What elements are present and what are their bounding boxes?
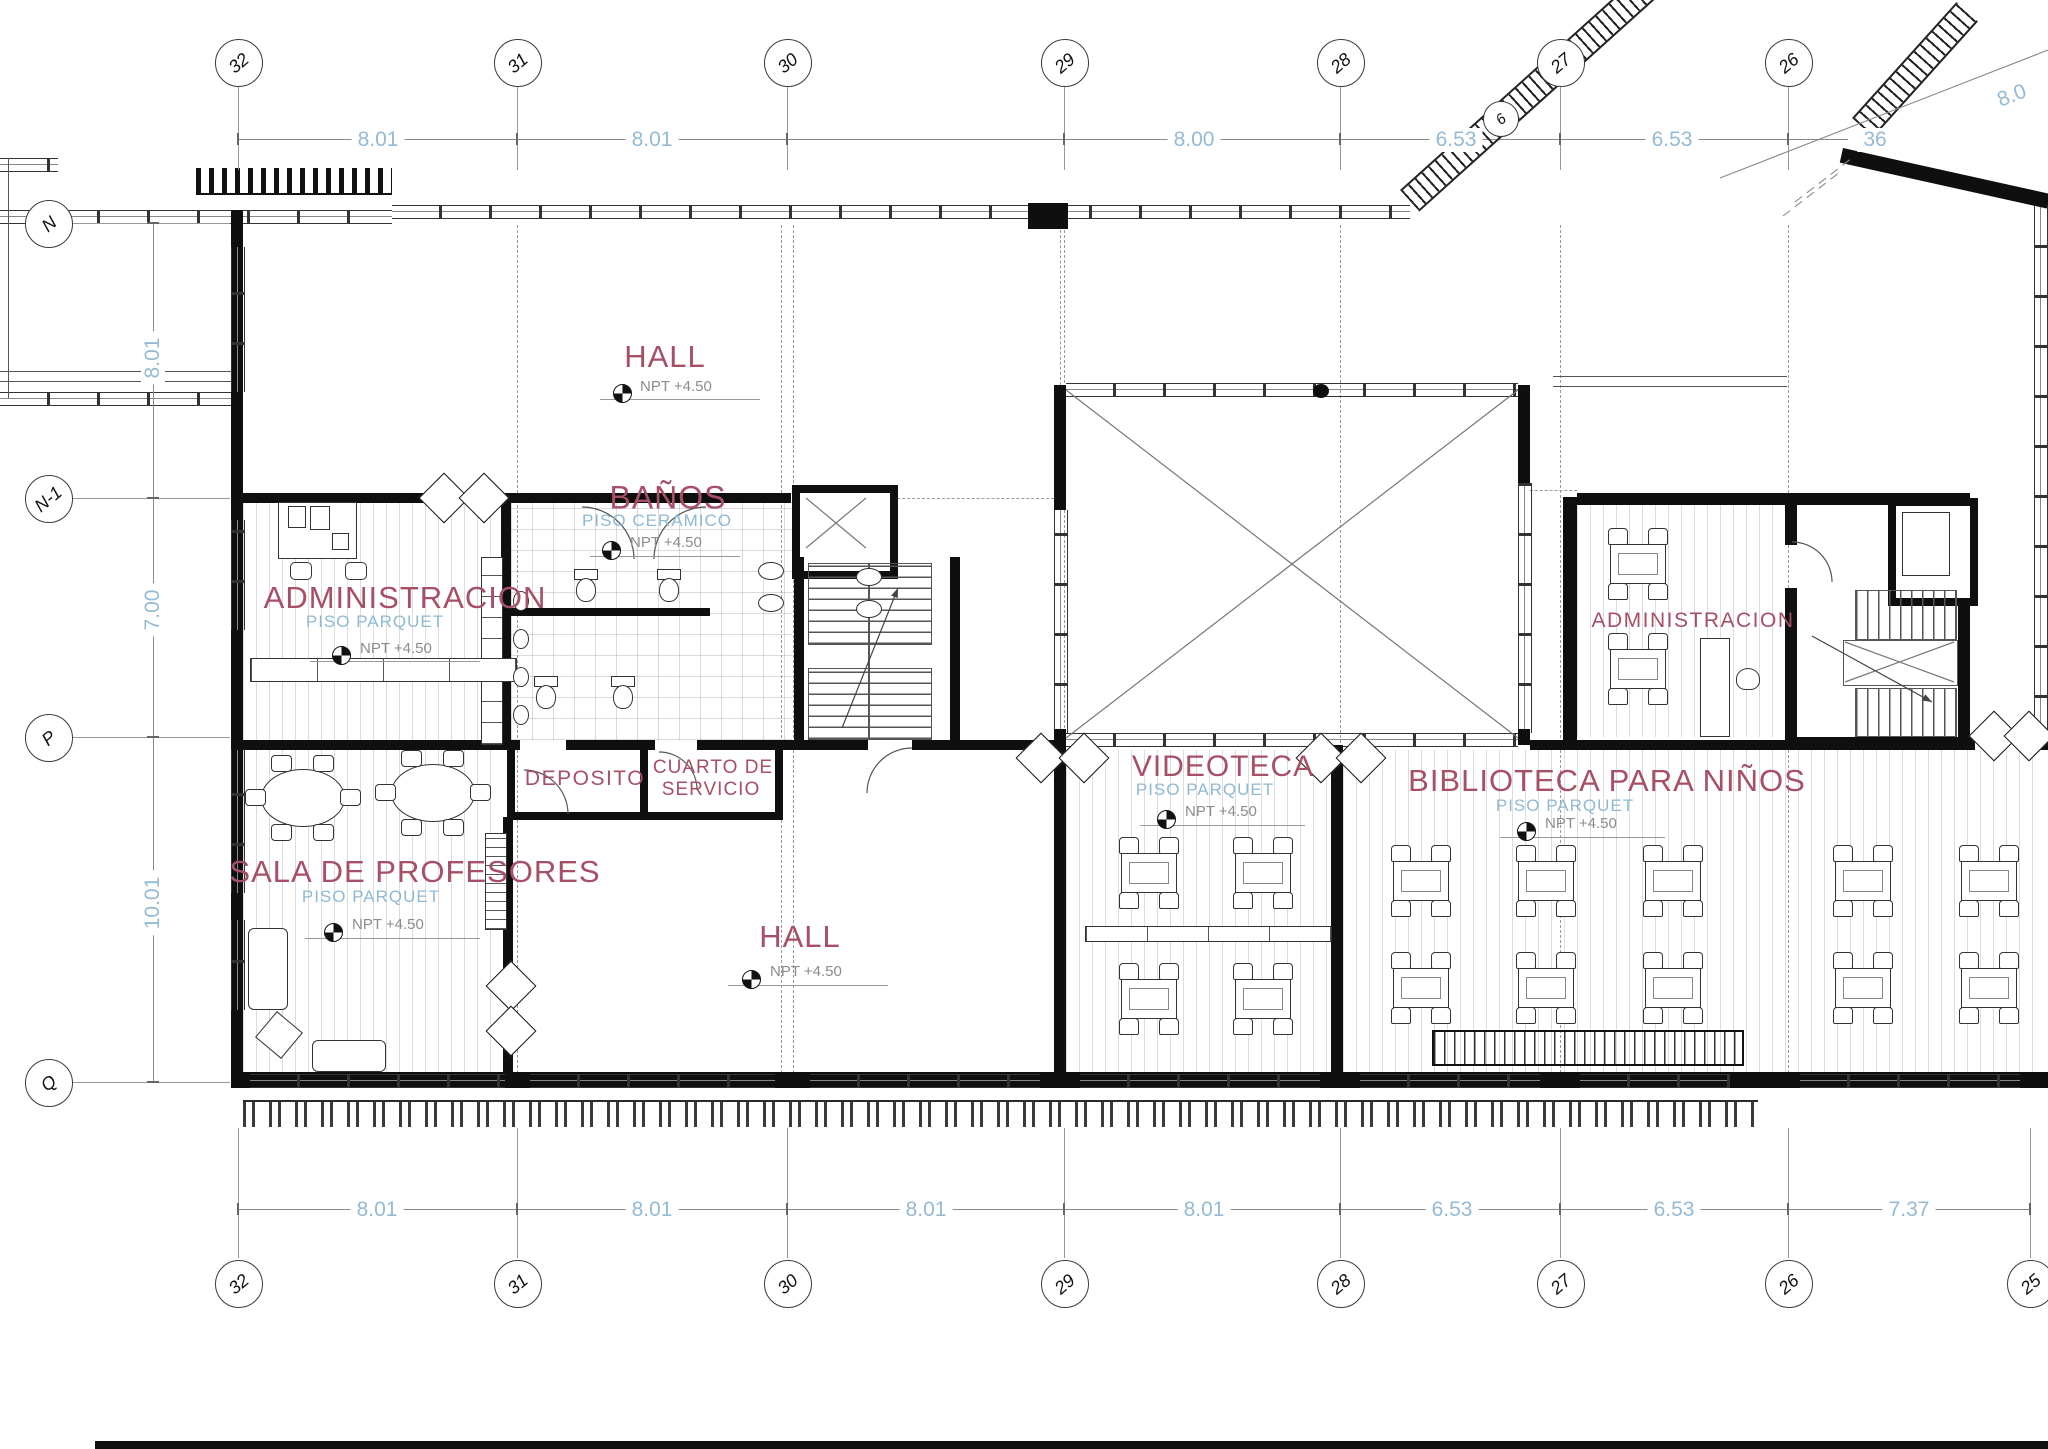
level-marker-videoteca	[1157, 810, 1176, 829]
grid-bubble-top-30: 30	[764, 39, 812, 87]
dim-left-0: 8.01	[141, 332, 165, 385]
floor-label-biblioteca: PISO PARQUET	[1496, 796, 1634, 816]
label-videoteca: VIDEOTECA	[1132, 750, 1314, 784]
grid-bubble-bottom-28: 28	[1317, 1260, 1365, 1308]
dim-left-2: 10.01	[141, 871, 165, 936]
grid-bubble-bottom-30: 30	[764, 1260, 812, 1308]
linework-overlay	[0, 0, 2048, 1449]
npt-sala: NPT +4.50	[352, 916, 424, 933]
dim-bottom-5: 6.53	[1648, 1198, 1701, 1222]
door-arc-admin-right	[1792, 542, 1832, 582]
npt-videoteca: NPT +4.50	[1185, 803, 1257, 820]
door-arc-vestibule	[867, 748, 912, 793]
label-cuarto-2: SERVICIO	[662, 779, 760, 801]
grid-bubble-row-P: P	[25, 714, 73, 762]
label-admin-right: ADMINISTRACION	[1591, 609, 1794, 633]
diagonal-dashed-1	[1795, 158, 1852, 202]
label-admin-left: ADMINISTRACION	[264, 580, 547, 616]
grid-bubble-bottom-32: 32	[215, 1260, 263, 1308]
dim-bottom-6: 7.37	[1883, 1198, 1936, 1222]
diagonal-dashed-2	[1783, 172, 1840, 216]
dim-bottom-2: 8.01	[900, 1198, 953, 1222]
dim-bottom-0: 8.01	[351, 1198, 404, 1222]
label-biblioteca: BIBLIOTECA PARA NIÑOS	[1408, 763, 1806, 799]
grid-bubble-top-32: 32	[215, 39, 263, 87]
level-marker-biblioteca	[1517, 822, 1536, 841]
npt-admin-left: NPT +4.50	[360, 640, 432, 657]
dim-top-5: 36	[1857, 128, 1892, 152]
grid-bubble-top-28: 28	[1317, 39, 1365, 87]
stair-right-arrow	[1812, 636, 1932, 702]
dim-top-0: 8.01	[352, 128, 405, 152]
dim-top-3: 6.53	[1430, 128, 1483, 152]
floor-label-admin-left: PISO PARQUET	[306, 612, 444, 632]
floor-label-videoteca: PISO PARQUET	[1136, 780, 1274, 800]
level-marker-admin-left	[332, 646, 351, 665]
level-marker-sala	[324, 923, 343, 942]
floor-plan: HALL NPT +4.50 BAÑOS PISO CERAMICO NPT +…	[0, 0, 2048, 1449]
dim-left-1: 7.00	[141, 584, 165, 637]
label-hall-bottom: HALL	[759, 919, 841, 955]
dim-top-1: 8.01	[626, 128, 679, 152]
grid-bubble-row-Q: Q	[25, 1059, 73, 1107]
grid-bubble-bottom-25: 25	[2007, 1260, 2048, 1308]
npt-hall-top: NPT +4.50	[640, 378, 712, 395]
grid-bubble-bottom-27: 27	[1537, 1260, 1585, 1308]
grid-bubble-top-26: 26	[1765, 39, 1813, 87]
npt-hall-bottom: NPT +4.50	[770, 963, 842, 980]
label-deposito: DEPOSITO	[525, 767, 645, 791]
grid-bubble-top-29: 29	[1041, 39, 1089, 87]
dim-bottom-3: 8.01	[1178, 1198, 1231, 1222]
grid-bubble-aux-6: 6	[1483, 101, 1519, 137]
floor-label-sala: PISO PARQUET	[302, 887, 440, 907]
label-hall-top: HALL	[624, 339, 706, 375]
grid-bubble-bottom-26: 26	[1765, 1260, 1813, 1308]
dim-top-2: 8.00	[1168, 128, 1221, 152]
npt-biblioteca: NPT +4.50	[1545, 815, 1617, 832]
grid-bubble-top-31: 31	[494, 39, 542, 87]
stair-left-arrow	[842, 588, 898, 728]
level-marker-hall-bottom	[742, 970, 761, 989]
label-sala: SALA DE PROFESORES	[229, 854, 600, 890]
level-marker-hall-top	[613, 384, 632, 403]
grid-bubble-bottom-31: 31	[494, 1260, 542, 1308]
grid-bubble-bottom-29: 29	[1041, 1260, 1089, 1308]
npt-banos: NPT +4.50	[630, 534, 702, 551]
grid-bubble-row-N-1: N-1	[25, 475, 73, 523]
grid-bubble-top-27: 27	[1537, 39, 1585, 87]
dim-bottom-4: 6.53	[1426, 1198, 1479, 1222]
grid-bubble-row-N: N	[25, 200, 73, 248]
floor-label-banos: PISO CERAMICO	[582, 511, 732, 531]
dim-bottom-1: 8.01	[626, 1198, 679, 1222]
level-marker-banos	[602, 541, 621, 560]
dim-top-4: 6.53	[1646, 128, 1699, 152]
label-cuarto-1: CUARTO DE	[653, 757, 773, 779]
